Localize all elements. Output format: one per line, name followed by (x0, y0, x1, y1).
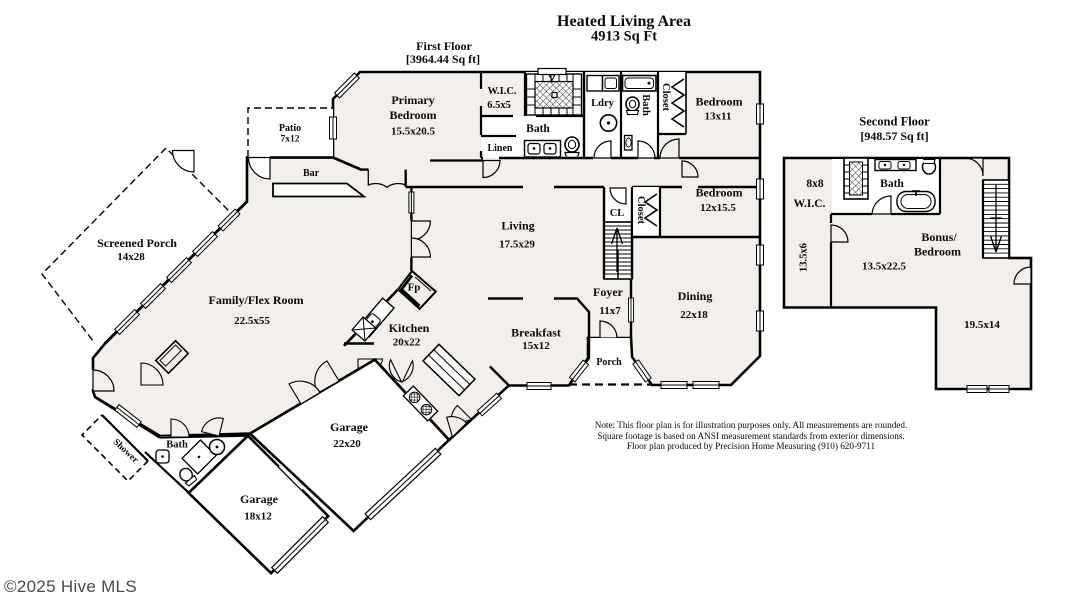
svg-text:Family/Flex Room: Family/Flex Room (209, 293, 304, 307)
svg-text:Bedroom: Bedroom (914, 245, 961, 259)
svg-text:20x22: 20x22 (393, 337, 421, 349)
svg-text:13.5x6: 13.5x6 (799, 243, 810, 272)
svg-text:11x7: 11x7 (599, 305, 621, 317)
svg-text:15.5x20.5: 15.5x20.5 (391, 126, 436, 138)
svg-text:6.5x5: 6.5x5 (487, 100, 511, 111)
svg-text:Heated Living Area: Heated Living Area (557, 13, 691, 30)
svg-text:Garage: Garage (240, 492, 279, 506)
svg-text:Floor plan produced by Precisi: Floor plan produced by Precision Home Me… (627, 441, 876, 451)
svg-text:Bedroom: Bedroom (695, 95, 742, 109)
svg-text:15x12: 15x12 (522, 340, 550, 352)
svg-text:Ldry: Ldry (591, 98, 615, 109)
svg-text:Garage: Garage (330, 420, 369, 434)
svg-text:12x15.5: 12x15.5 (700, 202, 736, 214)
svg-text:Fp: Fp (408, 282, 421, 294)
svg-text:22x18: 22x18 (680, 309, 708, 321)
svg-text:Foyer: Foyer (593, 285, 624, 299)
svg-text:13x11: 13x11 (705, 111, 732, 123)
svg-text:Screened Porch: Screened Porch (97, 236, 177, 250)
svg-text:Bar: Bar (303, 168, 320, 179)
svg-text:Linen: Linen (487, 143, 512, 154)
svg-text:Bonus/: Bonus/ (921, 230, 957, 244)
svg-text:[948.57 Sq ft]: [948.57 Sq ft] (860, 129, 928, 143)
svg-text:17.5x29: 17.5x29 (499, 239, 535, 251)
svg-text:Bath: Bath (526, 123, 550, 135)
svg-text:Breakfast: Breakfast (511, 326, 561, 340)
svg-text:Dining: Dining (678, 289, 713, 303)
svg-text:Bath: Bath (640, 94, 651, 116)
svg-text:Living: Living (501, 219, 534, 233)
svg-text:Second Floor: Second Floor (859, 115, 930, 129)
svg-text:CL: CL (610, 208, 625, 219)
svg-text:Note: This floor plan is for i: Note: This floor plan is for illustratio… (595, 420, 908, 430)
svg-text:Kitchen: Kitchen (389, 321, 430, 335)
svg-text:Bedroom: Bedroom (389, 108, 436, 122)
svg-text:Closet: Closet (660, 83, 671, 111)
svg-text:Patio: Patio (279, 123, 301, 134)
svg-text:W.I.C.: W.I.C. (794, 198, 826, 210)
svg-text:[3964.44 Sq ft]: [3964.44 Sq ft] (406, 52, 480, 66)
svg-text:22.5x55: 22.5x55 (234, 315, 270, 327)
svg-text:19.5x14: 19.5x14 (964, 319, 1000, 331)
svg-text:Bath: Bath (166, 440, 188, 451)
svg-text:7x12: 7x12 (281, 135, 300, 145)
svg-text:4913 Sq Ft: 4913 Sq Ft (591, 29, 657, 45)
svg-text:Bedroom: Bedroom (695, 186, 742, 200)
svg-text:8x8: 8x8 (806, 178, 824, 190)
svg-text:Primary: Primary (391, 93, 434, 107)
svg-text:18x12: 18x12 (244, 511, 272, 523)
svg-text:Closet: Closet (635, 196, 646, 224)
svg-text:W.I.C.: W.I.C. (487, 86, 516, 97)
svg-text:13.5x22.5: 13.5x22.5 (862, 261, 907, 273)
svg-text:14x28: 14x28 (117, 251, 145, 263)
svg-text:Bath: Bath (880, 178, 904, 190)
svg-text:Square footage is based on ANS: Square footage is based on ANSI measurem… (597, 431, 904, 441)
svg-text:Porch: Porch (596, 357, 622, 368)
svg-text:First Floor: First Floor (416, 39, 472, 53)
svg-text:©2025 Hive MLS: ©2025 Hive MLS (4, 577, 137, 596)
svg-text:22x20: 22x20 (333, 438, 361, 450)
